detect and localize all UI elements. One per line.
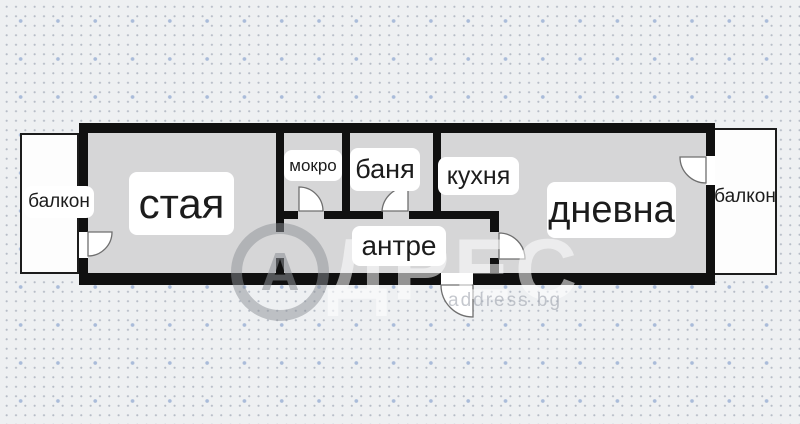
room-label-antre: антре xyxy=(352,226,446,266)
room-label-mokro: мокро xyxy=(284,150,342,181)
balcony-left-door-opening xyxy=(79,232,88,258)
room-label-balcony-left: балкон xyxy=(24,186,94,218)
wall-mokro-banya xyxy=(342,133,350,219)
wall-antre-top-3 xyxy=(409,211,499,219)
balcony-right-door-opening xyxy=(706,156,715,185)
room-label-kuhnya: кухня xyxy=(438,157,519,195)
floor-plan: А ДРЕС address.bg балкон стая мокро баня… xyxy=(0,0,800,424)
wall-antre-top-2 xyxy=(324,211,383,219)
wall-antre-top-1 xyxy=(276,211,298,219)
watermark-logo-letter: А xyxy=(261,241,300,303)
watermark-logo-circle: А xyxy=(231,223,329,321)
room-label-balcony-right: балкон xyxy=(712,182,778,212)
room-label-banya: баня xyxy=(350,148,420,191)
room-label-staya: стая xyxy=(129,172,234,235)
watermark-subtext: address.bg xyxy=(448,290,562,312)
room-label-dnevna: дневна xyxy=(547,182,676,238)
